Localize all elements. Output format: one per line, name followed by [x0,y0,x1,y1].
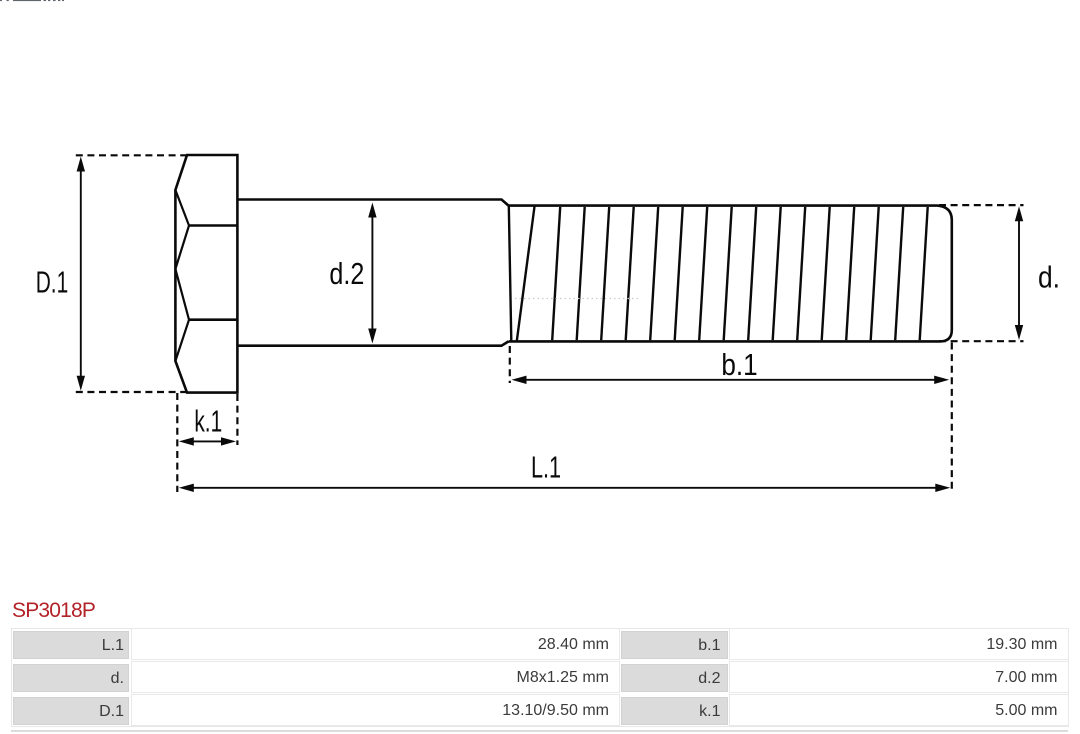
svg-text:b.1: b.1 [721,347,757,382]
svg-text:L.1: L.1 [531,449,561,484]
svg-text:d.2: d.2 [329,256,364,291]
svg-text:k.1: k.1 [194,404,222,439]
svg-text:d.: d. [1038,260,1060,295]
svg-text:D.1: D.1 [36,265,68,300]
